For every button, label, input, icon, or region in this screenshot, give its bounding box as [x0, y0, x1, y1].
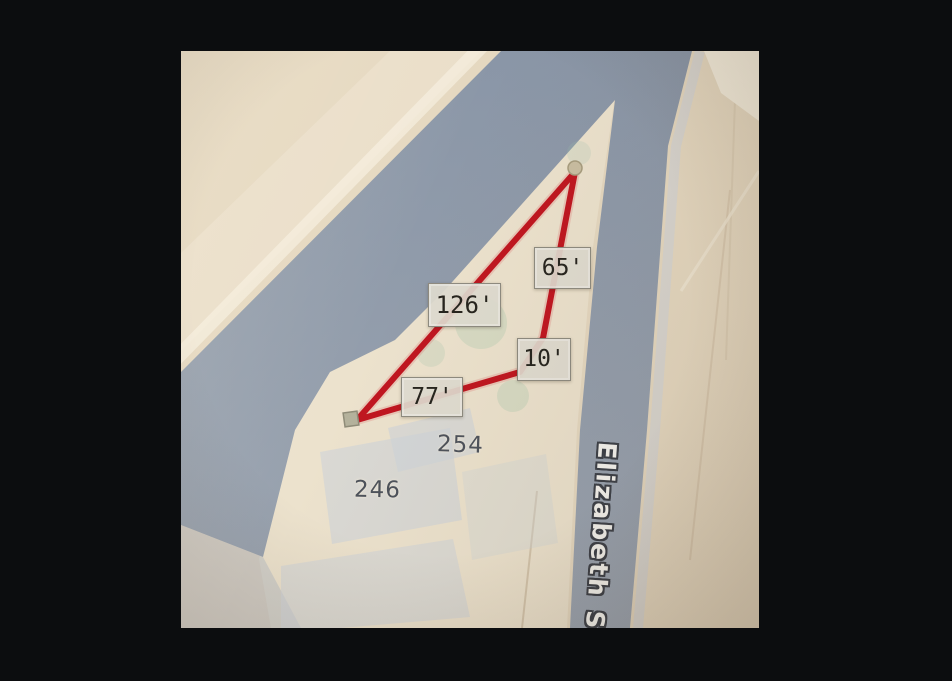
building-east [462, 454, 558, 560]
address-label-254: 254 [437, 431, 485, 459]
measurement-label-77: 77' [401, 377, 463, 417]
map-image: 65' 126' 10' 77' 254 246 Elizabeth S [181, 51, 759, 628]
vertex-marker-north [568, 161, 582, 175]
measurement-label-10: 10' [517, 338, 571, 381]
photo-frame: 65' 126' 10' 77' 254 246 Elizabeth S [0, 0, 952, 681]
vegetation-smudge [497, 380, 529, 412]
vertex-marker-southwest [343, 411, 359, 427]
map-canvas [181, 51, 759, 628]
address-label-246: 246 [354, 477, 401, 504]
measurement-label-126: 126' [428, 283, 501, 327]
measurement-label-65: 65' [534, 247, 591, 289]
